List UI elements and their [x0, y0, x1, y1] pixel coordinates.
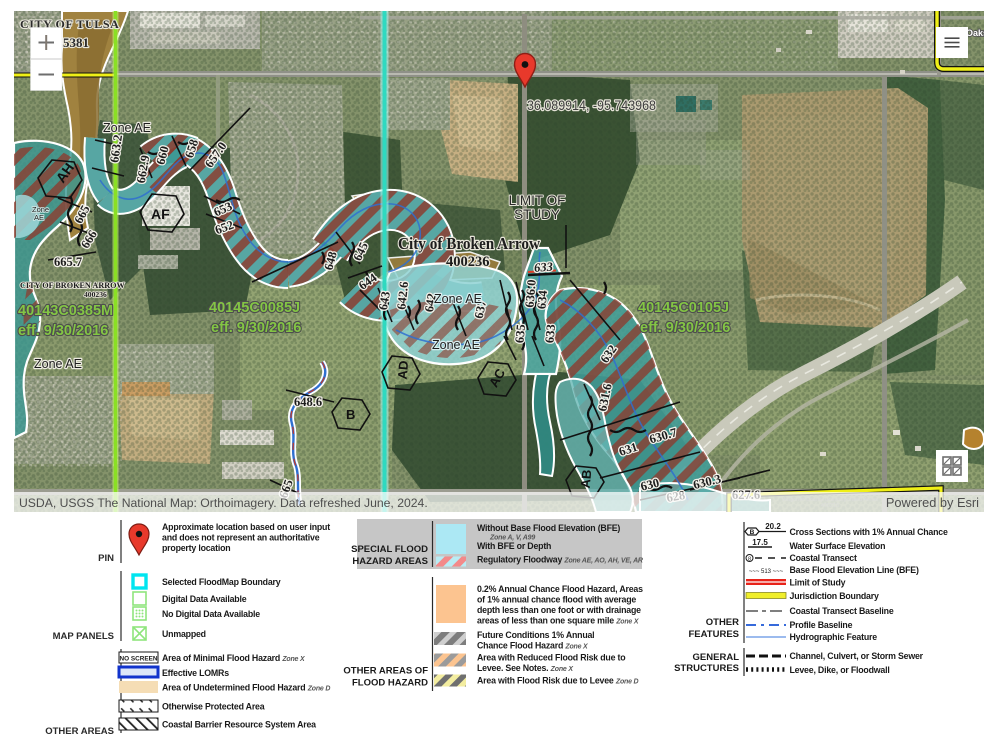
svg-text:HAZARD AREAS: HAZARD AREAS [352, 556, 428, 567]
svg-text:Profile Baseline: Profile Baseline [790, 620, 853, 630]
svg-text:Area with Flood Risk due to Le: Area with Flood Risk due to Levee Zone D [477, 676, 639, 686]
svg-text:642.6: 642.6 [394, 281, 411, 310]
svg-text:Without Base Flood Elevation (: Without Base Flood Elevation (BFE) [477, 523, 620, 533]
svg-text:Area with Reduced Flood Risk d: Area with Reduced Flood Risk due to [477, 653, 626, 663]
svg-text:665.7: 665.7 [54, 255, 82, 269]
svg-text:NO SCREEN: NO SCREEN [120, 656, 158, 663]
svg-text:property location: property location [162, 543, 230, 553]
svg-text:PIN: PIN [98, 553, 114, 564]
svg-text:City of Broken Arrow: City of Broken Arrow [398, 234, 540, 253]
svg-text:Base Flood Elevation Line (BFE: Base Flood Elevation Line (BFE) [790, 565, 919, 575]
svg-text:400236: 400236 [84, 290, 107, 299]
svg-text:Coastal Transect Baseline: Coastal Transect Baseline [790, 606, 894, 616]
svg-text:USDA, USGS The National Map: O: USDA, USGS The National Map: Orthoimager… [19, 496, 428, 510]
svg-text:GENERAL: GENERAL [693, 652, 740, 663]
svg-text:eff. 9/30/2016: eff. 9/30/2016 [211, 320, 301, 336]
svg-text:17.5: 17.5 [752, 538, 768, 547]
svg-text:of 1% annual chance flood with: of 1% annual chance flood with average [477, 595, 636, 605]
svg-text:36.089914, -95.743968: 36.089914, -95.743968 [527, 98, 656, 113]
svg-text:40145C0105J: 40145C0105J [638, 300, 729, 316]
svg-text:635: 635 [512, 324, 528, 344]
svg-text:Levee, Dike, or Floodwall: Levee, Dike, or Floodwall [790, 665, 890, 675]
svg-text:areas of less than one square: areas of less than one square mile Zone … [477, 616, 640, 626]
svg-text:Future Conditions 1% Annual: Future Conditions 1% Annual [477, 630, 594, 640]
svg-text:depth less than one foot or wi: depth less than one foot or with drainag… [477, 605, 641, 615]
svg-text:No Digital Data Available: No Digital Data Available [162, 609, 260, 619]
svg-text:Water Surface Elevation: Water Surface Elevation [790, 541, 886, 551]
svg-text:Zone AE: Zone AE [103, 121, 151, 135]
svg-text:634: 634 [534, 289, 550, 310]
svg-text:and does not represent an auth: and does not represent an authoritative [162, 533, 320, 543]
svg-text:B: B [750, 529, 755, 536]
svg-text:20.2: 20.2 [765, 522, 781, 531]
svg-text:Limit of Study: Limit of Study [790, 578, 846, 588]
svg-text:FEATURES: FEATURES [689, 629, 740, 640]
svg-text:0.2% Annual Chance Flood Hazar: 0.2% Annual Chance Flood Hazard, Areas [477, 584, 643, 594]
svg-text:OTHER AREAS OF: OTHER AREAS OF [343, 666, 428, 677]
svg-text:eff. 9/30/2016: eff. 9/30/2016 [18, 323, 108, 339]
svg-text:AD: AD [395, 360, 412, 380]
svg-text:Otherwise Protected Area: Otherwise Protected Area [162, 702, 265, 712]
svg-text:eff. 9/30/2016: eff. 9/30/2016 [640, 320, 730, 336]
svg-text:SPECIAL FLOOD: SPECIAL FLOOD [351, 544, 428, 555]
svg-text:648.6: 648.6 [294, 395, 322, 409]
svg-text:CITY OF BROKEN ARROW: CITY OF BROKEN ARROW [20, 281, 126, 290]
svg-text:AB: AB [578, 469, 595, 489]
svg-text:Powered by Esri: Powered by Esri [886, 495, 979, 510]
svg-text:AE: AE [34, 213, 44, 222]
svg-text:Coastal Barrier Resource Syste: Coastal Barrier Resource System Area [162, 720, 316, 730]
svg-text:MAP PANELS: MAP PANELS [53, 631, 114, 642]
svg-text:Selected FloodMap Boundary: Selected FloodMap Boundary [162, 577, 281, 587]
svg-text:8: 8 [748, 557, 751, 563]
svg-text:Digital Data Available: Digital Data Available [162, 594, 247, 604]
svg-text:5381: 5381 [63, 35, 89, 50]
svg-text:Cross Sections with 1% Annual: Cross Sections with 1% Annual Chance [790, 527, 948, 537]
svg-text:Channel, Culvert, or Storm Sew: Channel, Culvert, or Storm Sewer [790, 651, 924, 661]
svg-text:Jurisdiction Boundary: Jurisdiction Boundary [790, 591, 879, 601]
svg-text:Unmapped: Unmapped [162, 629, 206, 639]
svg-text:Hydrographic Feature: Hydrographic Feature [790, 632, 878, 642]
svg-text:Zone AE: Zone AE [434, 292, 482, 306]
svg-text:Zone AE: Zone AE [34, 357, 82, 371]
svg-text:OTHER AREAS: OTHER AREAS [45, 726, 114, 737]
svg-text:~~~ 513 ~~~: ~~~ 513 ~~~ [749, 569, 784, 575]
svg-text:633: 633 [534, 260, 554, 275]
svg-text:STUDY: STUDY [514, 207, 560, 222]
svg-text:633: 633 [542, 324, 558, 344]
svg-text:STRUCTURES: STRUCTURES [674, 663, 739, 674]
svg-text:40145C0085J: 40145C0085J [209, 300, 300, 316]
svg-text:B: B [346, 407, 355, 422]
svg-text:Zone AE: Zone AE [432, 338, 480, 352]
svg-text:OTHER: OTHER [706, 617, 739, 628]
svg-text:With BFE or Depth: With BFE or Depth [477, 541, 551, 551]
svg-text:Effective LOMRs: Effective LOMRs [162, 668, 229, 678]
svg-text:LIMIT OF: LIMIT OF [509, 193, 566, 208]
svg-text:Coastal Transect: Coastal Transect [790, 553, 857, 563]
svg-text:AF: AF [151, 206, 170, 222]
svg-text:Approximate location based on: Approximate location based on user input [162, 522, 330, 532]
svg-text:FLOOD HAZARD: FLOOD HAZARD [352, 678, 428, 689]
svg-text:400236: 400236 [446, 254, 490, 270]
svg-text:40143C0385M: 40143C0385M [18, 303, 113, 319]
svg-text:Area of Undetermined Flood Haz: Area of Undetermined Flood Hazard Zone D [162, 683, 330, 693]
